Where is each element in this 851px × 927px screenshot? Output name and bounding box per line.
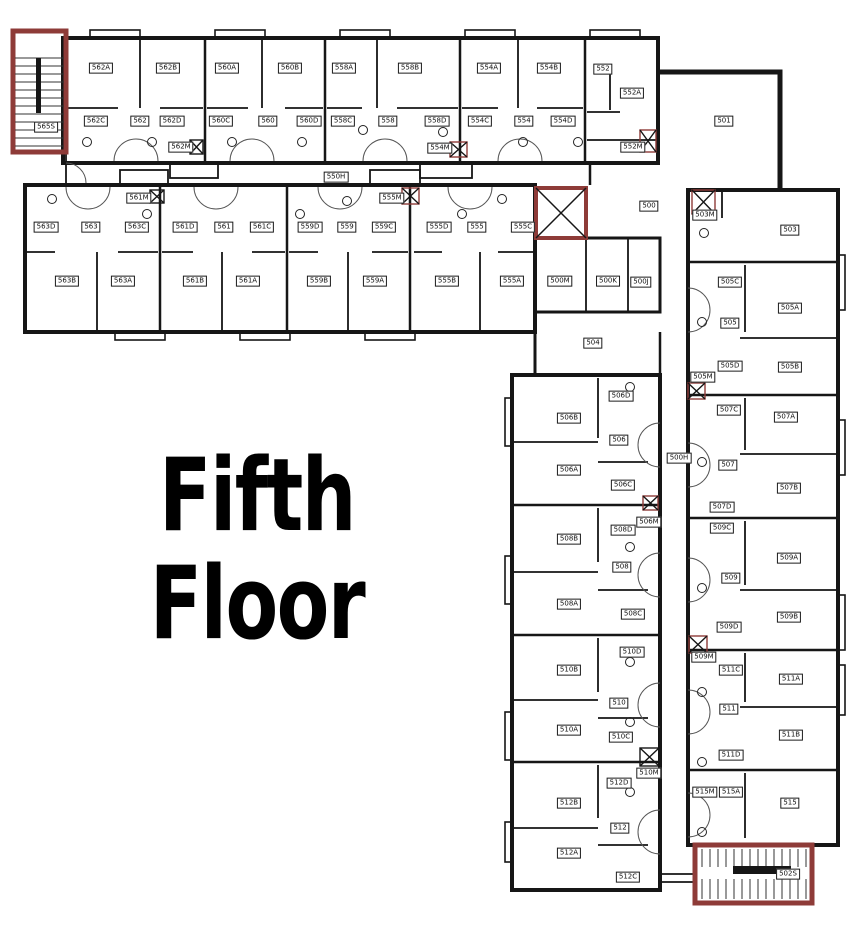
room-label-558c: 558C (331, 116, 355, 127)
room-label-560b: 560B (278, 63, 302, 74)
room-label-562a: 562A (89, 63, 113, 74)
room-label-562: 562 (130, 116, 149, 127)
room-label-511c: 511C (719, 665, 743, 676)
room-label-552m: 552M (620, 142, 645, 153)
room-label-508b: 508B (557, 534, 581, 545)
room-label-554: 554 (514, 116, 533, 127)
room-label-510b: 510B (557, 665, 581, 676)
room-label-500h: 500H (667, 453, 692, 464)
room-label-561a: 561A (236, 276, 260, 287)
room-label-509d: 509D (717, 622, 742, 633)
room-label-555c: 555C (511, 222, 535, 233)
room-label-560c: 560C (209, 116, 233, 127)
room-label-510a: 510A (557, 725, 581, 736)
room-label-554c: 554C (468, 116, 492, 127)
room-label-559d: 559D (298, 222, 323, 233)
room-label-550h: 550H (324, 172, 349, 183)
room-label-559b: 559B (307, 276, 331, 287)
room-label-554d: 554D (551, 116, 576, 127)
room-label-558: 558 (378, 116, 397, 127)
room-label-500: 500 (639, 201, 658, 212)
room-label-503m: 503M (692, 210, 717, 221)
room-label-512a: 512A (557, 848, 581, 859)
room-label-508d: 508D (611, 525, 636, 536)
room-label-510d: 510D (620, 647, 645, 658)
room-label-562d: 562D (160, 116, 185, 127)
room-label-562c: 562C (84, 116, 108, 127)
room-label-554a: 554A (477, 63, 501, 74)
room-label-563c: 563C (125, 222, 149, 233)
room-label-512d: 512D (607, 778, 632, 789)
room-label-505b: 505B (778, 362, 802, 373)
room-label-511d: 511D (719, 750, 744, 761)
room-label-560d: 560D (297, 116, 322, 127)
room-label-506: 506 (609, 435, 628, 446)
room-label-515a: 515A (719, 787, 743, 798)
room-label-510m: 510M (636, 768, 661, 779)
room-label-505m: 505M (690, 372, 715, 383)
room-label-558b: 558B (398, 63, 422, 74)
room-label-515: 515 (780, 798, 799, 809)
room-label-502s: 502S (776, 869, 800, 880)
room-label-562b: 562B (156, 63, 180, 74)
room-label-515m: 515M (692, 787, 717, 798)
room-label-505d: 505D (718, 361, 743, 372)
room-label-561d: 561D (173, 222, 198, 233)
floor-title: Fifth Floor (150, 441, 364, 657)
room-label-505c: 505C (718, 277, 742, 288)
room-label-559c: 559C (372, 222, 396, 233)
room-label-511: 511 (719, 704, 738, 715)
room-label-562m: 562M (168, 142, 193, 153)
room-label-507b: 507B (777, 483, 801, 494)
room-label-561c: 561C (250, 222, 274, 233)
room-label-511b: 511B (779, 730, 803, 741)
room-label-512c: 512C (616, 872, 640, 883)
room-label-512b: 512B (557, 798, 581, 809)
room-label-559: 559 (337, 222, 356, 233)
floor-title-line1: Fifth (150, 441, 364, 549)
room-label-501: 501 (714, 116, 733, 127)
room-label-506a: 506A (557, 465, 581, 476)
room-label-552a: 552A (620, 88, 644, 99)
room-label-510c: 510C (609, 732, 633, 743)
room-label-508: 508 (612, 562, 631, 573)
room-label-506c: 506C (611, 480, 635, 491)
room-label-500j: 500J (630, 277, 651, 288)
room-label-508a: 508A (557, 599, 581, 610)
room-label-509: 509 (721, 573, 740, 584)
room-label-561: 561 (214, 222, 233, 233)
room-label-559a: 559A (363, 276, 387, 287)
stairwell-565s (13, 31, 66, 152)
room-label-506b: 506B (557, 413, 581, 424)
room-label-565s: 565S (34, 122, 58, 133)
room-label-508c: 508C (621, 609, 645, 620)
room-label-511a: 511A (779, 674, 803, 685)
room-label-560: 560 (258, 116, 277, 127)
room-label-561b: 561B (183, 276, 207, 287)
room-label-563a: 563A (111, 276, 135, 287)
room-label-555m: 555M (379, 193, 404, 204)
room-label-555: 555 (467, 222, 486, 233)
room-label-509a: 509A (777, 553, 801, 564)
room-label-504: 504 (583, 338, 602, 349)
room-label-505a: 505A (778, 303, 802, 314)
room-label-500k: 500K (596, 276, 620, 287)
room-label-505: 505 (720, 318, 739, 329)
floor-plan: 565S562A562B560A560B558A558B554A554B5525… (0, 0, 851, 927)
room-label-558a: 558A (332, 63, 356, 74)
room-label-507c: 507C (717, 405, 741, 416)
room-label-506m: 506M (636, 517, 661, 528)
room-label-512: 512 (610, 823, 629, 834)
room-label-554b: 554B (537, 63, 561, 74)
room-label-506d: 506D (609, 391, 634, 402)
room-label-507: 507 (718, 460, 737, 471)
room-label-509m: 509M (691, 652, 716, 663)
room-label-555a: 555A (500, 276, 524, 287)
room-label-555d: 555D (427, 222, 452, 233)
room-label-563: 563 (81, 222, 100, 233)
room-label-507d: 507D (710, 502, 735, 513)
room-label-507a: 507A (774, 412, 798, 423)
room-label-560a: 560A (215, 63, 239, 74)
room-label-500m: 500M (547, 276, 572, 287)
room-label-558d: 558D (425, 116, 450, 127)
room-label-563b: 563B (55, 276, 79, 287)
room-label-561m: 561M (126, 193, 151, 204)
room-label-503: 503 (780, 225, 799, 236)
room-label-509b: 509B (777, 612, 801, 623)
room-label-552: 552 (593, 64, 612, 75)
room-label-555b: 555B (435, 276, 459, 287)
room-label-563d: 563D (34, 222, 59, 233)
room-label-509c: 509C (710, 523, 734, 534)
room-label-554m: 554M (427, 143, 452, 154)
floor-title-line2: Floor (150, 549, 364, 657)
elevator-shaft (536, 188, 586, 238)
room-label-510: 510 (609, 698, 628, 709)
